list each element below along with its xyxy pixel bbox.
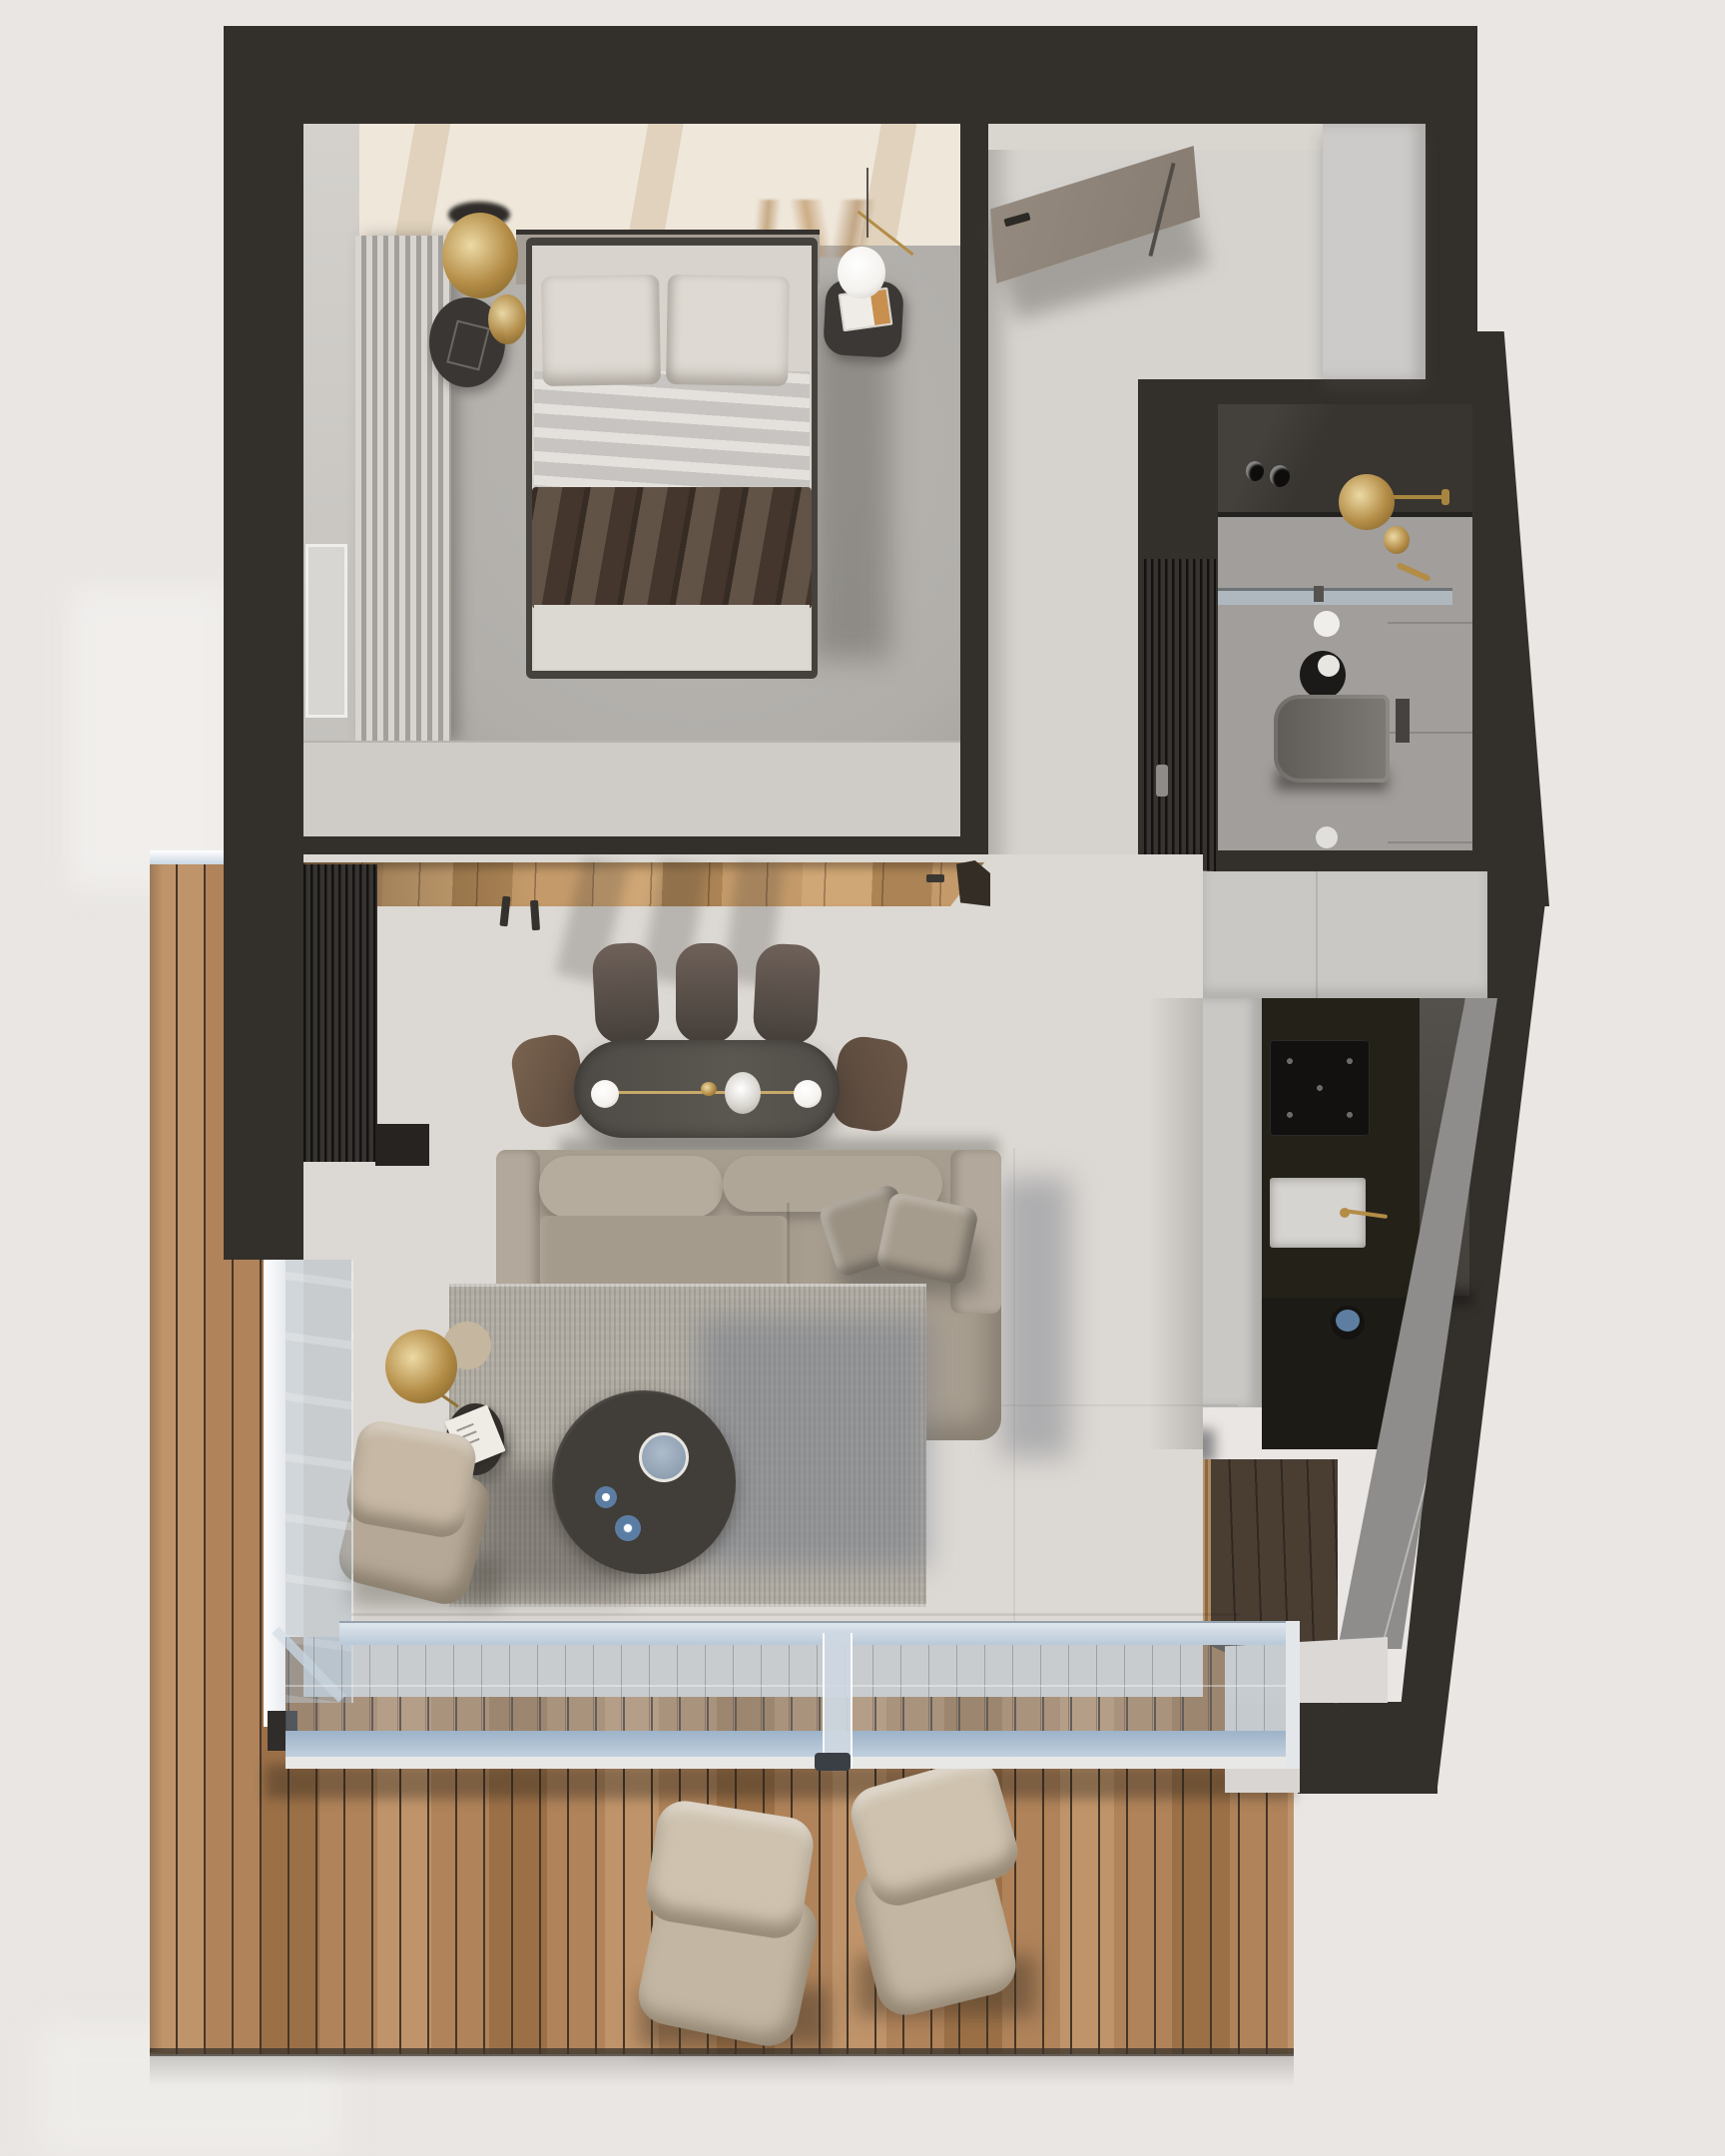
- dining-chair-1: [591, 941, 660, 1044]
- glass-south-right-cap: [1286, 1621, 1300, 1769]
- toilet-paper-roll-2: [1318, 655, 1340, 677]
- curtain-wardrobe: [355, 236, 451, 741]
- floor-drain: [1316, 826, 1338, 848]
- floor-plan-scene: [0, 0, 1725, 2156]
- white-cabinet-seam: [1316, 871, 1318, 998]
- wall-left: [224, 124, 303, 1260]
- glass-south-top-frame: [339, 1621, 1294, 1645]
- sofa-right-shadow: [1000, 1178, 1070, 1457]
- kitchen-pot-lid: [1336, 1310, 1360, 1332]
- table-gold-dish: [701, 1082, 717, 1096]
- induction-cooktop: [1270, 1040, 1370, 1136]
- gold-floor-lamp: [385, 1330, 457, 1403]
- centerpiece-bowl: [725, 1072, 761, 1114]
- glass-wall-west-frame: [264, 1260, 286, 1727]
- wall-hung-toilet: [1274, 695, 1390, 783]
- background-left-light-patch: [70, 589, 230, 888]
- interior-sill-line: [351, 1613, 1240, 1616]
- glass-south-bottom-rail: [286, 1731, 1294, 1759]
- rain-shower-arm-cap: [1441, 489, 1449, 505]
- lounge-cushion-top: [343, 1417, 479, 1540]
- deck-drop-shadow: [150, 2056, 1294, 2086]
- sofa-back-cushion-left: [539, 1156, 723, 1218]
- partition-bracket: [1314, 586, 1324, 602]
- glass-balustrade-edge: [150, 850, 224, 864]
- bean-bag-left-top-cushion: [642, 1797, 817, 1941]
- sliding-door-handle: [815, 1753, 851, 1771]
- vanity-accessory-2: [1270, 465, 1290, 487]
- deck-edge-shadow: [150, 2048, 1294, 2056]
- wall-bottom-right-corner: [1298, 1702, 1437, 1794]
- gold-pendant-lamp: [442, 213, 518, 298]
- bedroom-left-wall-face: [303, 124, 359, 834]
- sphere-lamp-antenna: [866, 168, 868, 238]
- bed-foot-sheet: [534, 605, 810, 669]
- blue-cup-2-dot: [624, 1524, 632, 1532]
- gold-tray: [488, 294, 526, 344]
- brown-throw-blanket: [532, 487, 812, 609]
- rug-blue-shadow: [699, 1318, 928, 1567]
- toilet-paper-roll: [1314, 611, 1340, 637]
- pillow-right: [666, 274, 790, 386]
- white-cabinet-band: [1203, 871, 1487, 998]
- round-coffee-table: [552, 1390, 736, 1574]
- glass-south-outer-sill: [286, 1757, 1294, 1769]
- rain-shower-arm: [1391, 495, 1446, 499]
- living-slat-panel: [303, 864, 377, 1162]
- kitchen-cabinet-strip: [1203, 998, 1262, 1407]
- faucet-base: [1340, 1208, 1350, 1218]
- dining-chair-3: [752, 942, 821, 1045]
- blue-cup-1-dot: [602, 1493, 610, 1501]
- living-slat-panel-foot: [375, 1124, 429, 1166]
- serving-bowl: [639, 1432, 689, 1482]
- table-lamp-ball-right: [794, 1080, 822, 1108]
- wall-bedroom-right: [960, 124, 988, 864]
- kitchen-corridor-shadow: [1148, 998, 1203, 1449]
- pillow-left: [541, 274, 661, 386]
- deck-wall-shadow: [150, 864, 164, 2052]
- strip-handle-icon: [926, 874, 944, 882]
- gold-shower-valve: [1384, 526, 1410, 554]
- dining-chair-2: [676, 943, 738, 1043]
- vanity-accessory-1: [1246, 461, 1264, 481]
- wall-top: [224, 26, 1477, 124]
- table-lamp-ball-left: [591, 1080, 619, 1108]
- sphere-table-lamp: [838, 247, 885, 298]
- gold-rain-shower-head: [1339, 474, 1395, 530]
- deck-shadow-under-glass: [266, 1765, 1294, 1799]
- flush-plate: [1396, 699, 1410, 743]
- white-closet: [1323, 124, 1426, 379]
- glass-south-reflection-line: [286, 1685, 1294, 1687]
- bedroom-window: [305, 544, 347, 718]
- bathroom-door-handle-icon: [1156, 765, 1168, 797]
- shower-glass-partition: [1218, 588, 1452, 605]
- glass-panel-junction-stile: [823, 1633, 853, 1769]
- bedroom-lower-wall-white: [303, 741, 960, 836]
